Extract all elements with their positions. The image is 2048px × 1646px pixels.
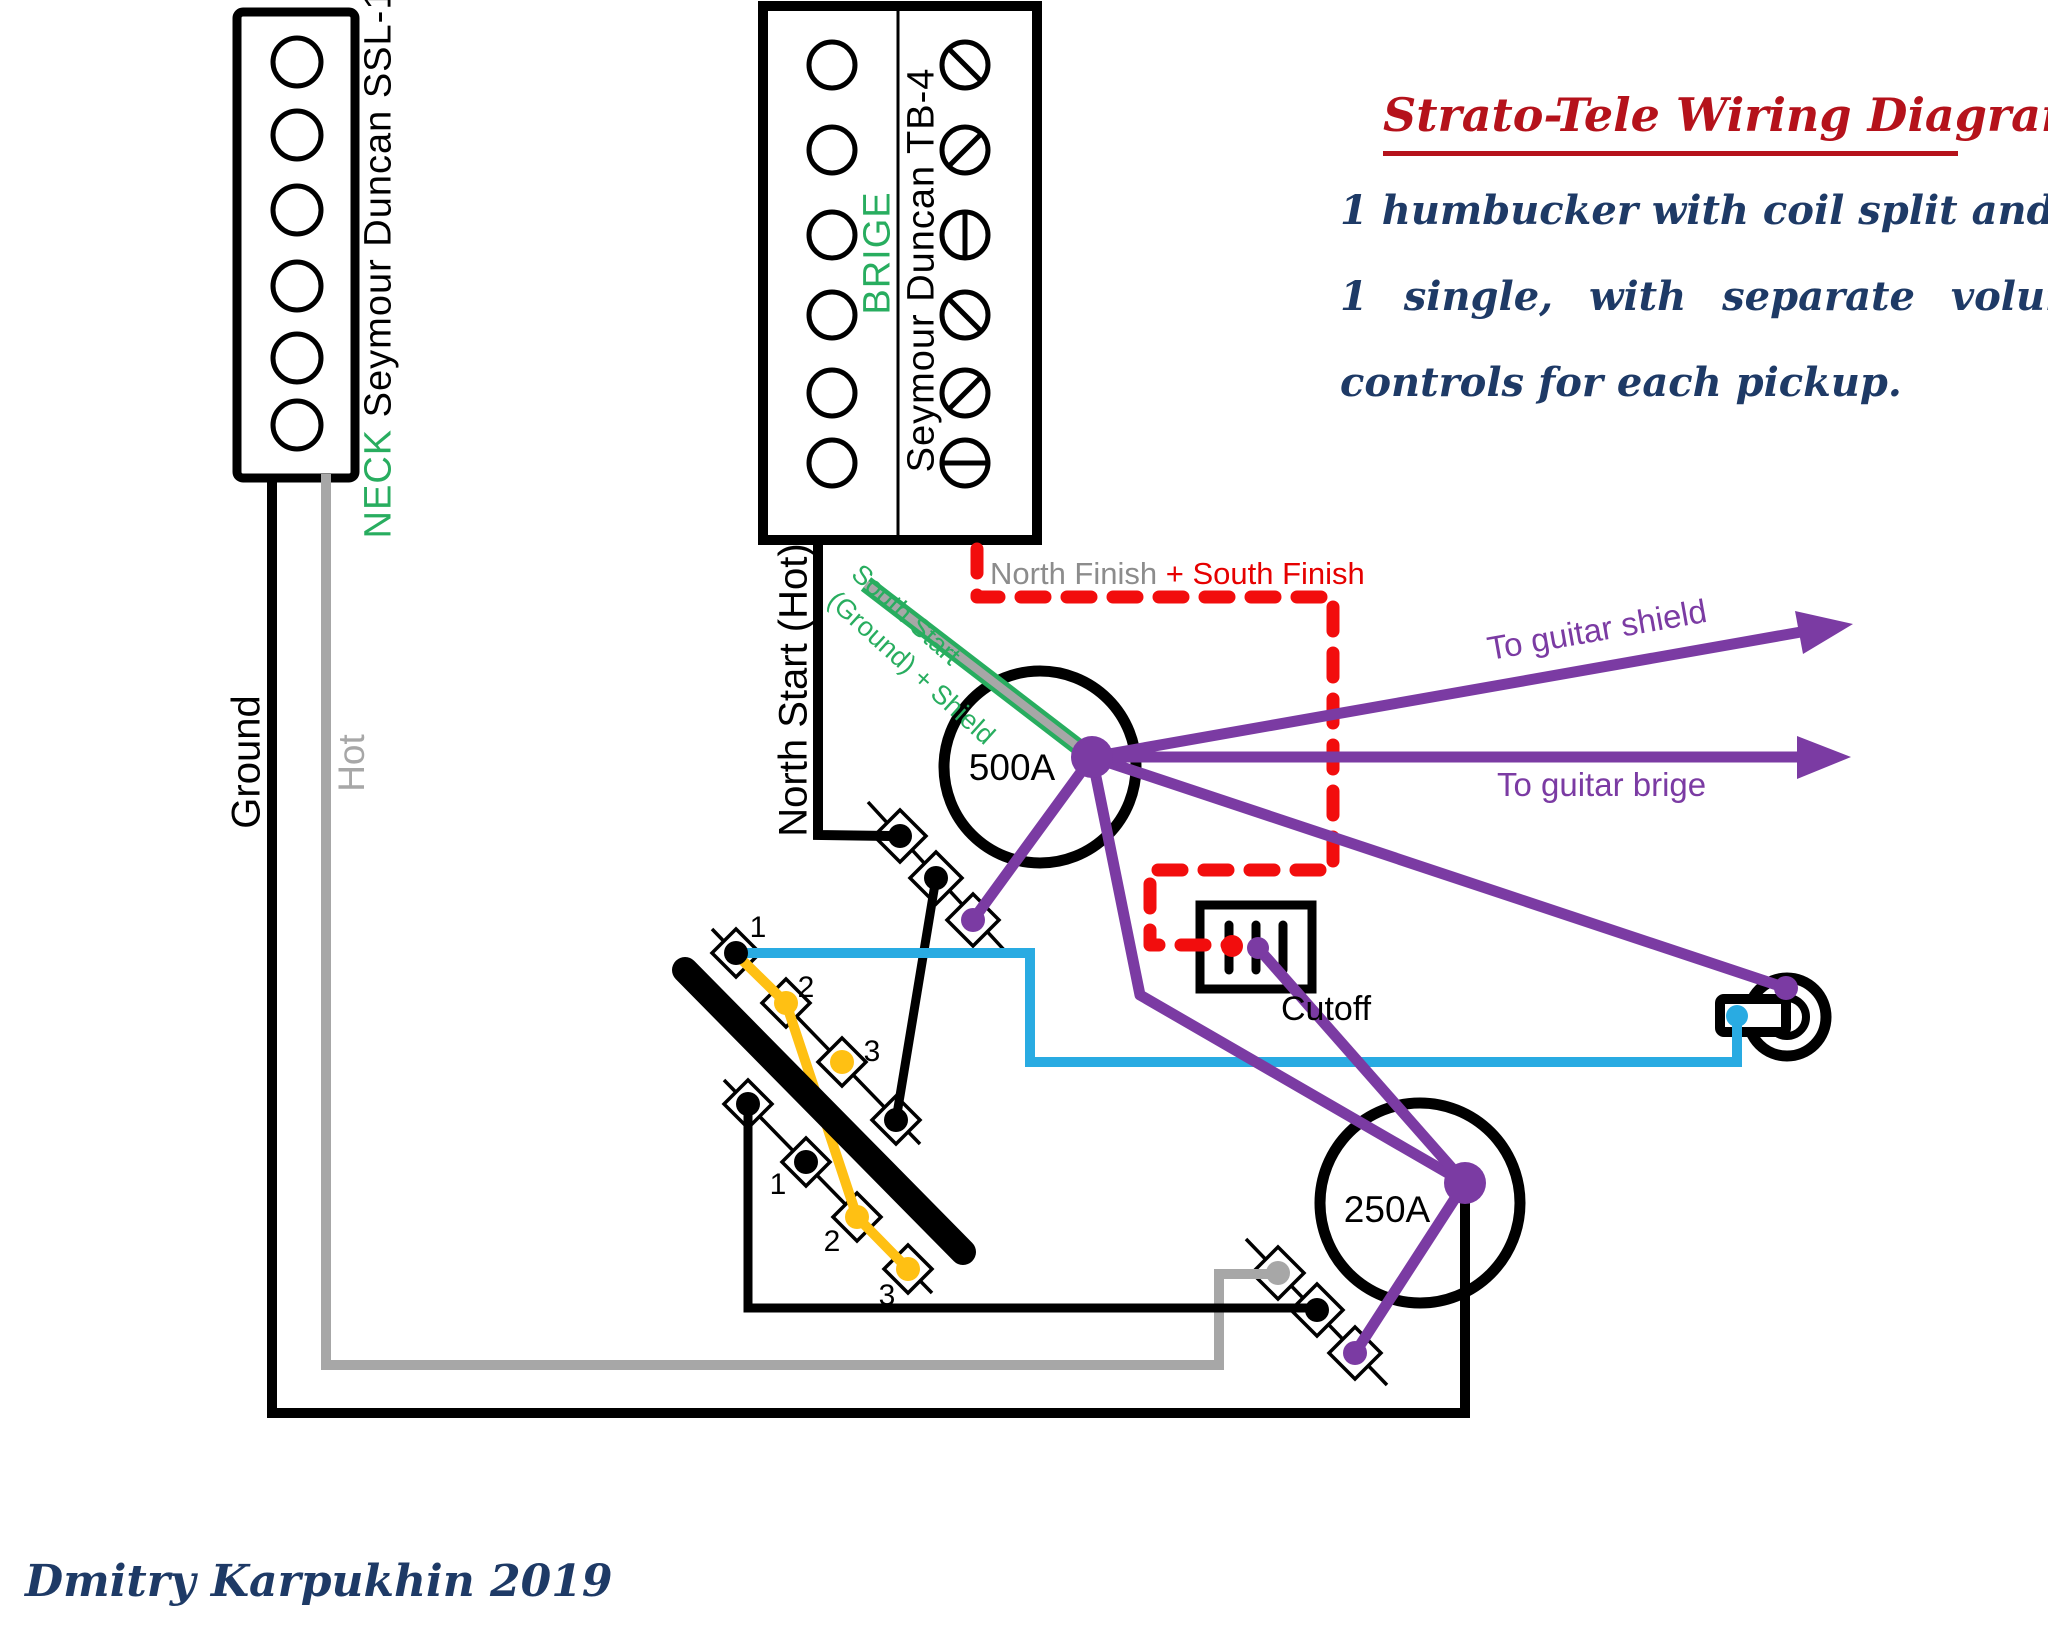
- selector-lever-bar: [685, 970, 963, 1252]
- north-finish-label: North Finish: [990, 556, 1166, 591]
- selector-top-3: 3: [864, 1035, 881, 1069]
- subtitle-line-1: 1 humbucker with coil split and: [1340, 168, 1930, 254]
- shield-arrowhead: [1795, 611, 1853, 654]
- to-guitar-bridge-label: To guitar brige: [1497, 766, 1706, 804]
- bridge-arrowhead: [1797, 736, 1851, 779]
- selector-top-2: 2: [798, 971, 815, 1005]
- pot500-to-selector-wire: [896, 878, 936, 1120]
- purple-shield-arrow-line: [1092, 632, 1801, 757]
- neck-pickup-label: NECK Seymour Duncan SSL-1: [358, 0, 401, 538]
- subtitle-line-2: 1 single, with separate volume: [1340, 254, 1930, 340]
- cutoff-label: Cutoff: [1281, 990, 1371, 1029]
- selector-bottom-1: 1: [770, 1168, 787, 1202]
- bridge-model-label: Seymour Duncan TB-4: [901, 68, 944, 473]
- diagram-subtitle: 1 humbucker with coil split and 1 single…: [1340, 168, 1930, 426]
- volume-250a-label: 250A: [1344, 1189, 1430, 1231]
- wiring-diagram-page: Strato-Tele Wiring Diagram 1 humbucker w…: [0, 0, 2048, 1646]
- subtitle-line-3: controls for each pickup.: [1340, 340, 1930, 426]
- author-signature: Dmitry Karpukhin 2019: [25, 1556, 612, 1607]
- hot-wire-label: Hot: [331, 734, 373, 792]
- bridge-position-label: BRIGE: [857, 191, 900, 314]
- neck-model-label: Seymour Duncan SSL-1: [358, 0, 400, 417]
- neck-position-label: NECK: [358, 429, 400, 539]
- north-start-wire-label: North Start (Hot): [772, 543, 817, 836]
- neck-pickup-box: [237, 12, 355, 478]
- volume-500a-label: 500A: [969, 747, 1055, 789]
- ground-wire-label: Ground: [225, 695, 270, 828]
- south-finish-label: + South Finish: [1166, 556, 1365, 591]
- selector-bottom-2: 2: [824, 1225, 841, 1259]
- selector-top-1: 1: [750, 911, 767, 945]
- selector-bottom-3: 3: [879, 1279, 896, 1313]
- diagram-title: Strato-Tele Wiring Diagram: [1383, 88, 1958, 156]
- finish-wires-label: North Finish + South Finish: [990, 556, 1365, 592]
